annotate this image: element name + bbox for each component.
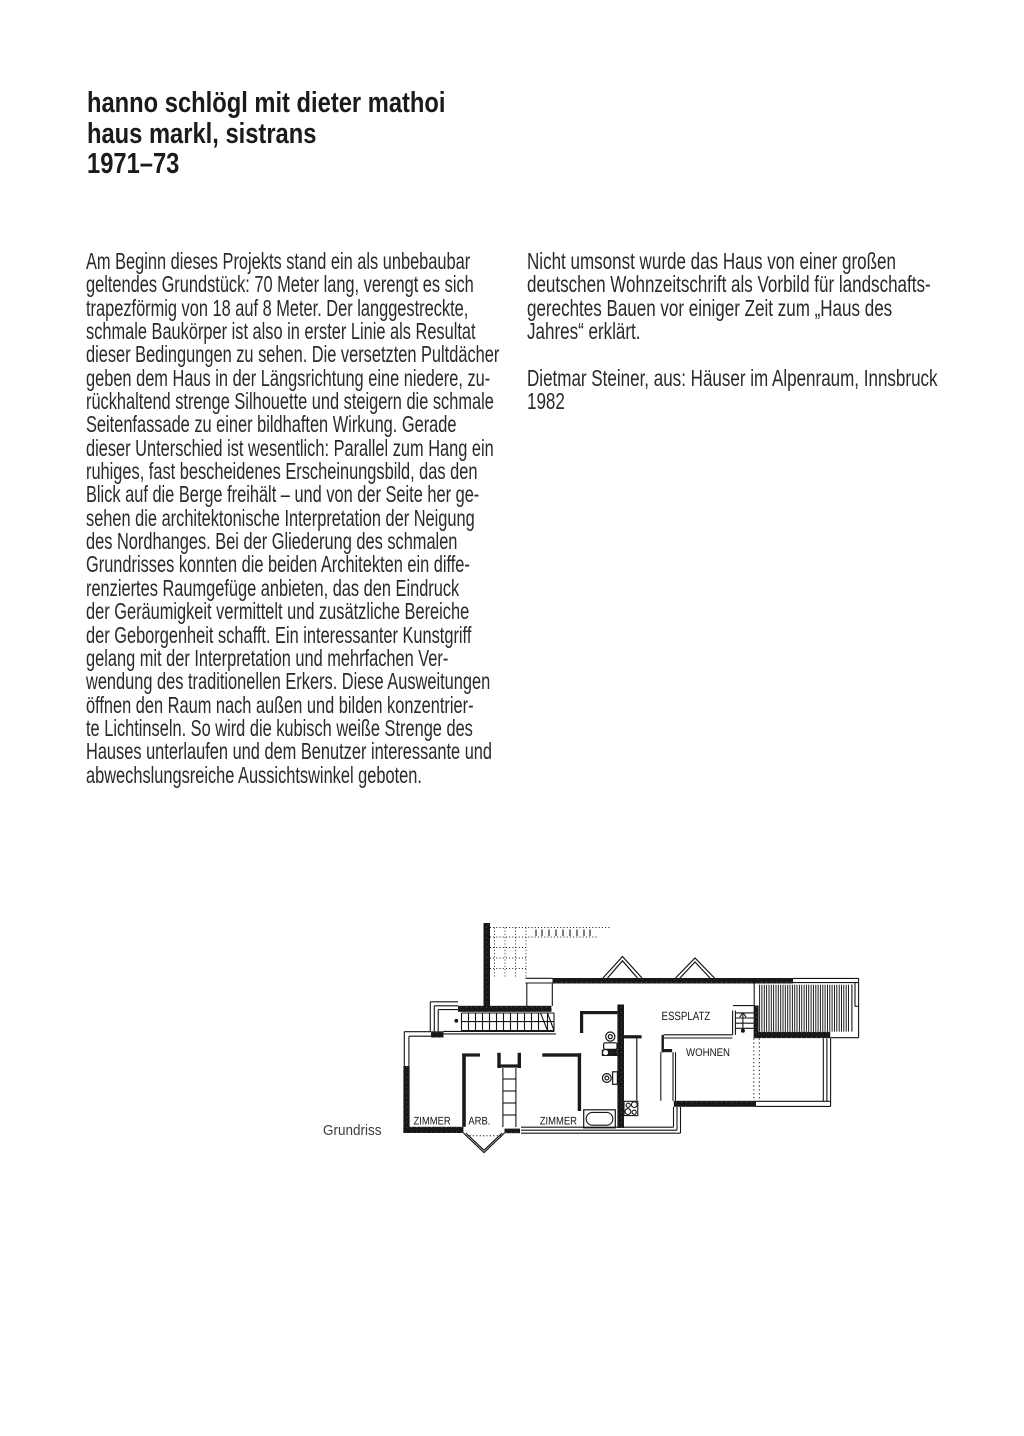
svg-text:ZIMMER: ZIMMER	[414, 1116, 451, 1128]
svg-text:ESSPLATZ: ESSPLATZ	[662, 1009, 711, 1023]
svg-text:ZIMMER: ZIMMER	[540, 1116, 577, 1128]
svg-text:WOHNEN: WOHNEN	[686, 1047, 730, 1059]
svg-text:ARB.: ARB.	[468, 1116, 490, 1128]
